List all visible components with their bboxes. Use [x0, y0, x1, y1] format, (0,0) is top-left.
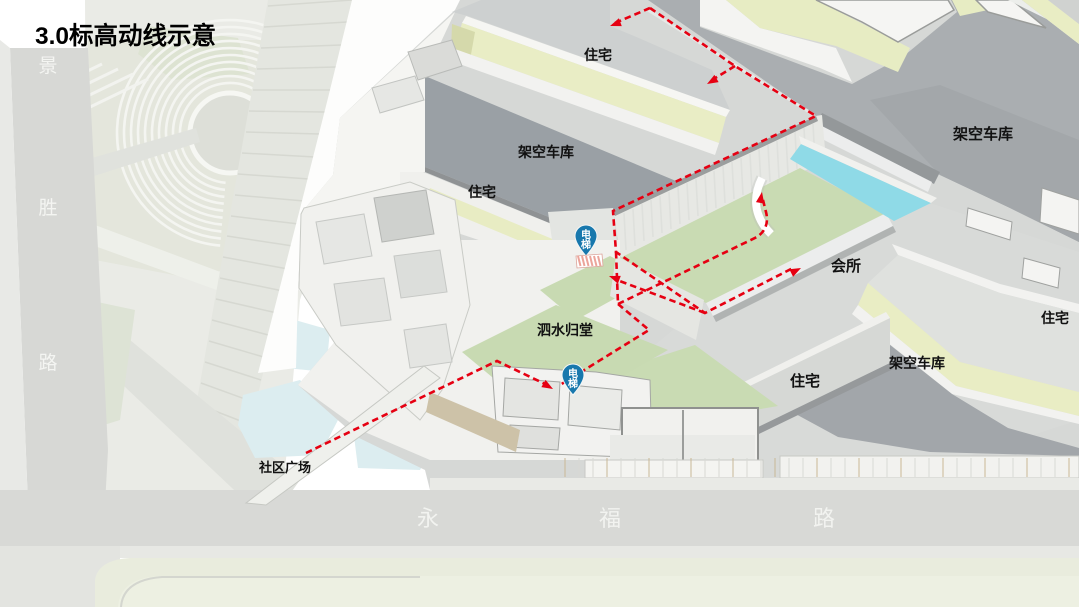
- svg-text:住宅: 住宅: [468, 184, 496, 200]
- svg-text:梯: 梯: [581, 238, 591, 251]
- svg-text:架空车库: 架空车库: [517, 144, 574, 160]
- svg-text:3.0标高动线示意: 3.0标高动线示意: [35, 21, 216, 50]
- svg-text:梯: 梯: [568, 377, 578, 390]
- svg-text:架空车库: 架空车库: [888, 355, 945, 371]
- svg-text:社区广场: 社区广场: [258, 460, 311, 475]
- svg-text:胜: 胜: [38, 197, 57, 219]
- svg-text:福: 福: [599, 506, 621, 531]
- svg-text:住宅: 住宅: [1041, 310, 1069, 326]
- svg-text:住宅: 住宅: [790, 372, 820, 390]
- svg-text:架空车库: 架空车库: [952, 125, 1013, 143]
- svg-text:路: 路: [38, 352, 57, 374]
- svg-text:住宅: 住宅: [584, 47, 612, 63]
- svg-text:泗水归堂: 泗水归堂: [537, 322, 593, 338]
- svg-text:永: 永: [417, 506, 439, 531]
- svg-text:路: 路: [813, 506, 835, 531]
- svg-text:会所: 会所: [831, 257, 861, 275]
- svg-text:景: 景: [38, 56, 57, 77]
